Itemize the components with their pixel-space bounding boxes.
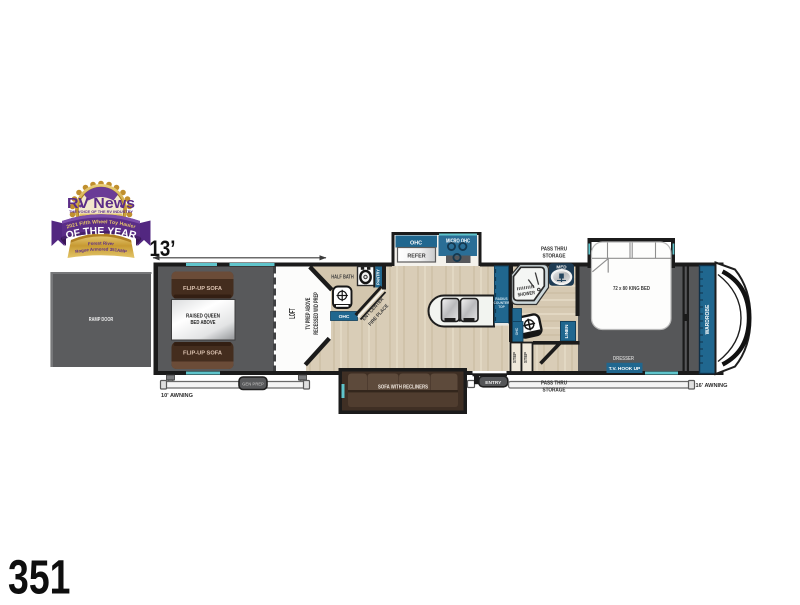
svg-text:16' AWNING: 16' AWNING xyxy=(696,383,728,389)
svg-text:PASS THRU: PASS THRU xyxy=(541,247,567,253)
svg-text:RAISED QUEEN: RAISED QUEEN xyxy=(186,314,220,320)
svg-text:ENTRY: ENTRY xyxy=(485,380,502,386)
svg-text:PASS THRU: PASS THRU xyxy=(541,381,567,387)
svg-text:FLIP-UP SOFA: FLIP-UP SOFA xyxy=(183,286,222,292)
svg-text:RECESSED W/D PREP: RECESSED W/D PREP xyxy=(313,292,320,335)
svg-text:LOFT: LOFT xyxy=(289,308,298,319)
svg-text:BED ABOVE: BED ABOVE xyxy=(191,320,216,326)
svg-text:OHC: OHC xyxy=(339,314,350,320)
svg-text:WARDROBE: WARDROBE xyxy=(705,304,711,334)
svg-text:Forest River: Forest River xyxy=(88,241,115,247)
svg-text:THE VOICE OF THE RV INDUSTRY: THE VOICE OF THE RV INDUSTRY xyxy=(69,210,134,214)
svg-text:351: 351 xyxy=(8,551,70,600)
svg-text:STEP: STEP xyxy=(523,352,528,363)
svg-text:HALF BATH: HALF BATH xyxy=(331,275,354,281)
svg-text:72 x 80 KING BED: 72 x 80 KING BED xyxy=(613,286,650,292)
svg-text:PANTRY: PANTRY xyxy=(375,269,380,285)
svg-text:SOFA WITH RECLINERS: SOFA WITH RECLINERS xyxy=(378,385,428,391)
svg-text:REFER: REFER xyxy=(407,254,425,260)
svg-text:DRESSER: DRESSER xyxy=(613,356,634,362)
svg-text:TV PREP ABOVE: TV PREP ABOVE xyxy=(305,297,312,329)
svg-text:TOP: TOP xyxy=(498,305,505,309)
svg-text:STEP: STEP xyxy=(512,352,517,363)
svg-text:T.V. HOOK UP: T.V. HOOK UP xyxy=(609,366,641,372)
svg-text:STORAGE: STORAGE xyxy=(543,254,566,260)
svg-text:LINEN: LINEN xyxy=(564,324,569,338)
svg-text:OHC: OHC xyxy=(515,327,519,335)
svg-text:RAMP DOOR: RAMP DOOR xyxy=(89,317,114,323)
svg-text:STORAGE: STORAGE xyxy=(543,388,566,394)
svg-text:MED: MED xyxy=(556,265,567,270)
svg-text:FLIP-UP SOFA: FLIP-UP SOFA xyxy=(183,351,222,357)
svg-text:10' AWNING: 10' AWNING xyxy=(161,393,193,399)
svg-text:GEN PREP: GEN PREP xyxy=(242,381,264,386)
svg-text:OHC: OHC xyxy=(410,241,422,247)
